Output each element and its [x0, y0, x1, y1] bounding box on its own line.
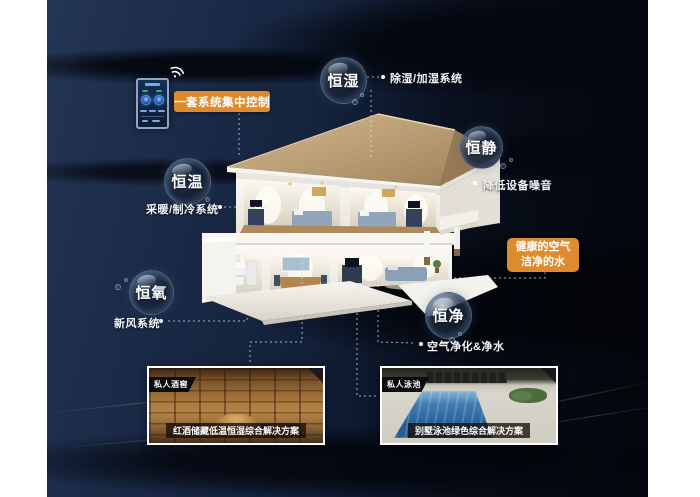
pool-card: 私人泳池 别墅泳池绿色综合解决方案 — [380, 366, 558, 445]
photo-corner-badge — [308, 368, 323, 383]
central-control-tag: 一套系统集中控制 — [174, 91, 270, 112]
bubble-temperature-label: 恒温 — [171, 171, 203, 192]
pool-bush — [511, 391, 532, 402]
pool-photo: 私人泳池 别墅泳池绿色综合解决方案 — [382, 368, 556, 443]
bubble-oxygen-label: 恒氧 — [135, 282, 167, 303]
label-freshair-system: 新风系统 — [114, 315, 160, 331]
healthy-air-water-tag: 健康的空气 洁净的水 — [507, 238, 579, 272]
wine-cellar-card: 私人酒窖 红酒储藏低温恒湿综合解决方案 — [147, 366, 325, 445]
label-hvac-system: 采暖/制冷系统 — [146, 201, 219, 217]
label-purify-system: 空气净化&净水 — [427, 338, 504, 354]
label-noise-system: 降低设备噪音 — [483, 177, 552, 193]
phone-label-bar — [152, 120, 160, 122]
healthy-air-line2: 洁净的水 — [521, 256, 565, 268]
pool-building — [427, 372, 507, 383]
phone-status-light — [142, 90, 148, 92]
bubble-humidity: 恒湿 — [320, 57, 367, 104]
mini-bubble — [509, 158, 513, 162]
wine-cellar-caption: 红酒储藏低温恒湿综合解决方案 — [166, 423, 306, 438]
poster-page: 一套系统集中控制 健康的空气 洁净的水 恒湿 恒静 恒温 恒氧 恒净 除湿/加湿… — [0, 0, 700, 497]
wifi-icon — [166, 62, 186, 80]
healthy-air-line1: 健康的空气 — [516, 241, 571, 253]
pool-ribbon: 私人泳池 — [382, 377, 429, 392]
photo-corner-badge — [541, 368, 556, 383]
mini-bubble — [124, 278, 128, 282]
bubble-purity: 恒净 — [425, 292, 472, 339]
phone-title-bar — [145, 83, 160, 86]
wine-cellar-ribbon: 私人酒窖 — [149, 377, 196, 392]
pool-caption: 别墅泳池绿色综合解决方案 — [408, 423, 530, 438]
phone-label-bar — [149, 110, 156, 112]
label-humidity-system: 除湿/加湿系统 — [390, 70, 463, 86]
bubble-temperature: 恒温 — [164, 158, 211, 205]
bubble-humidity-label: 恒湿 — [327, 70, 359, 91]
phone-divider — [141, 116, 164, 117]
central-control-tag-text: 一套系统集中控制 — [174, 94, 270, 110]
phone-dial-button — [141, 95, 151, 105]
phone-label-bar — [158, 110, 165, 112]
phone-dial-button — [154, 95, 164, 105]
healthy-air-water-text: 健康的空气 洁净的水 — [516, 240, 571, 270]
mini-bubble — [500, 163, 506, 169]
control-panel-device — [136, 78, 169, 129]
phone-label-bar — [140, 110, 147, 112]
phone-label-bar — [142, 120, 148, 122]
phone-status-light — [156, 90, 162, 92]
mini-bubble — [360, 93, 364, 97]
bubble-purity-label: 恒净 — [432, 305, 464, 326]
mini-bubble — [352, 99, 358, 105]
bubble-oxygen: 恒氧 — [129, 270, 174, 315]
wine-cellar-photo: 私人酒窖 红酒储藏低温恒湿综合解决方案 — [149, 368, 323, 443]
mini-bubble — [115, 284, 121, 290]
mini-bubble — [458, 332, 462, 336]
bubble-quiet: 恒静 — [460, 126, 503, 169]
bubble-quiet-label: 恒静 — [465, 137, 497, 158]
